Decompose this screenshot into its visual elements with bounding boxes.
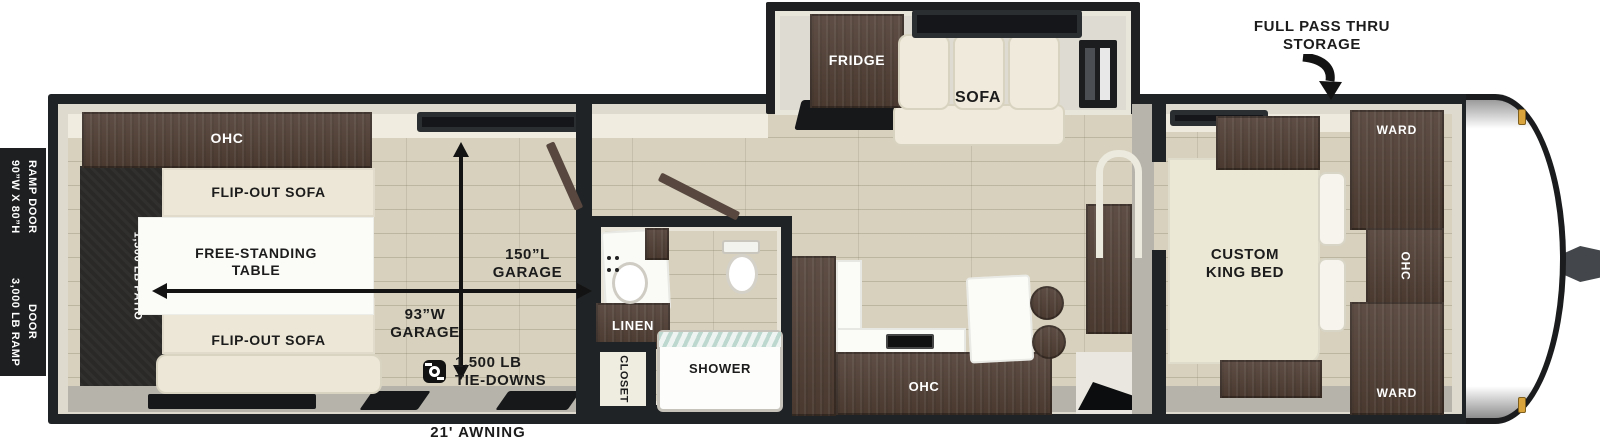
slideout-window-pane [1085,48,1095,100]
ramp-door-label-bar: 90”W X 80”H RAMP DOOR 3,000 LB RAMP DOOR [0,148,46,376]
linen-label: LINEN [596,318,670,334]
island-stool [1032,325,1066,359]
marker-light [1518,397,1526,413]
kitchen-island [966,274,1034,363]
bedroom-side-cabinet: OHC [1366,228,1444,304]
closet-label: CLOSET [614,355,631,403]
toilet-tank [722,240,760,254]
marker-light [1518,109,1526,125]
garage-length-line1: 150”L [470,246,585,264]
slideout-sofa-seat [893,104,1065,146]
bathroom-upper-cabinet [645,228,669,260]
sofa-bottom-cushion [156,354,382,394]
bed-pillow [1318,258,1346,332]
floorplan-canvas: 90”W X 80”H RAMP DOOR 3,000 LB RAMP DOOR… [0,0,1600,447]
ward-top-label: WARD [1350,123,1444,137]
ramp-door-size-line1: 90”W X 80”H [6,160,23,234]
bedroom-overhead-cabinet [1216,116,1320,170]
shower-glass [659,332,781,347]
shower-label: SHOWER [657,361,783,377]
ramp-door-size-label: 90”W X 80”H RAMP DOOR [6,160,40,234]
garage-length-arrow [166,289,578,293]
ramp-door-size-line2: RAMP DOOR [23,160,40,234]
kitchen-ohc-label: OHC [836,379,1012,395]
garage-width-label: 93”W GARAGE [370,306,480,342]
bedroom-partition-trim [1132,104,1154,414]
bedroom-wall-lower [1152,250,1166,414]
ramp-door-capacity-line1: 3,000 LB RAMP [6,278,23,367]
fridge-label: FRIDGE [810,52,904,69]
sidewall-compartment [148,394,316,409]
slideout-window-pane [1100,48,1110,100]
tie-downs-line1: 1,500 LB [455,354,575,372]
toilet-bowl [726,254,758,294]
sidewall-compartment [495,391,580,410]
kitchen-counter-vertical [836,260,862,334]
ward-bottom-label: WARD [1350,386,1444,400]
bed-pillow [1318,172,1346,246]
pass-thru-arrow-icon [1298,54,1350,102]
pass-thru-storage-label: FULL PASS THRU STORAGE [1232,18,1412,54]
garage-width-line1: 93”W [370,306,480,324]
garage-length-label: 150”L GARAGE [470,246,585,282]
island-stool [1030,286,1064,320]
tie-downs-line2: TIE-DOWNS [455,372,575,390]
awning-label: 21' AWNING [388,424,568,442]
bedroom-doorway-arch [1096,150,1142,258]
slideout-skylight [912,10,1082,38]
garage-ohc-label: OHC [82,130,372,147]
bed-footboard [1220,360,1322,398]
table-label-line1: FREE-STANDING [138,245,374,262]
free-standing-table-label: FREE-STANDING TABLE [138,245,374,279]
front-cap [1466,94,1566,424]
bedroom-wall-upper [1152,104,1166,162]
closet: CLOSET [590,342,656,416]
flip-out-sofa-bottom-label: FLIP-OUT SOFA [162,332,375,349]
faucet-icon [607,256,611,260]
cooktop [886,334,934,349]
bedroom-ohc-label: OHC [1396,251,1415,280]
king-bed-label: CUSTOM KING BED [1170,246,1320,282]
tie-down-icon [423,360,446,383]
king-bed-line2: KING BED [1170,264,1320,282]
ramp-door-capacity-label: 3,000 LB RAMP DOOR [6,278,40,367]
garage-window [417,112,579,132]
king-bed-line1: CUSTOM [1170,246,1320,264]
table-label-line2: TABLE [138,262,374,279]
ramp-door-capacity-line2: DOOR [23,278,40,367]
pass-thru-line2: STORAGE [1232,36,1412,54]
garage-length-line2: GARAGE [470,264,585,282]
bathroom-sink [612,262,648,304]
tie-downs-label: 1,500 LB TIE-DOWNS [455,354,575,390]
slideout-sofa-label: SOFA [928,88,1028,107]
pass-thru-line1: FULL PASS THRU [1232,18,1412,36]
flip-out-sofa-top-label: FLIP-OUT SOFA [162,184,375,201]
garage-width-line2: GARAGE [370,324,480,342]
